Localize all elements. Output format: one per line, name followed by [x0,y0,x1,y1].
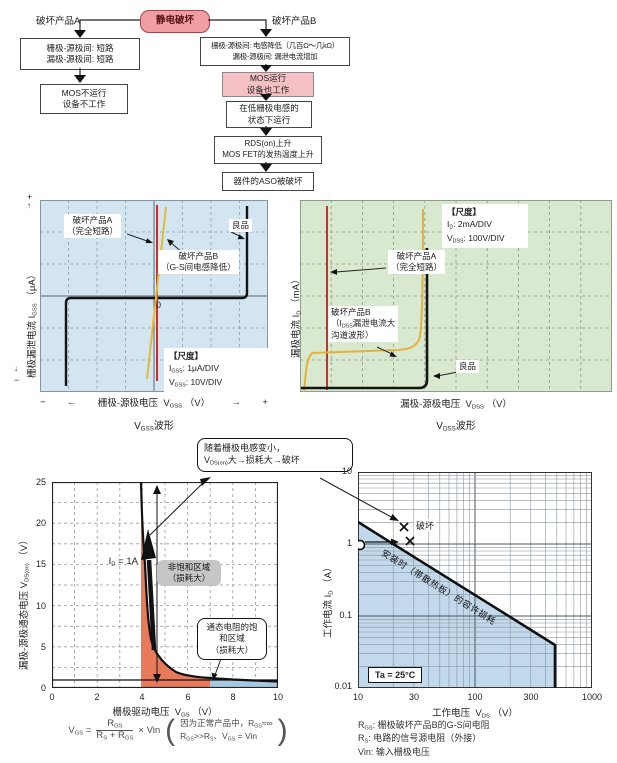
dss-y-axis-label: 漏极电流 ID （mA） [288,275,302,358]
label-text: 破坏产品B [331,307,371,317]
right-arrow-icon: → [231,397,241,408]
label-text: （G-S间电感降低） [161,262,236,272]
gss-label-good: 良品 [229,219,252,232]
gss-label-product-b: 破坏产品B （G-S间电感降低） [158,250,239,274]
label-text: （损耗大） [168,573,211,583]
note-rgs: RGS: 栅极破坏产品B的G-S间电阻 [358,719,490,732]
y-tick: 0.01 [326,681,352,691]
flow-box-b-symptoms: 栅极-源极间: 电感降低（几百Ω～几kΩ） 漏极-源极间: 漏泄电流增加 [200,37,350,66]
flow-box-a-symptoms: 栅极-源极间: 短路 漏极-源极间: 短路 [20,38,140,70]
operating-point-marker [358,541,365,550]
branch-b-label: 破坏产品B [272,13,316,27]
aso-chart-plot [358,472,592,688]
gss-minus-sign: − [14,375,19,385]
formula-note-line: 因为正常产品中，RGS≈∞ [180,718,272,731]
x-tick: 100 [460,692,490,702]
gss-zero-label: 0 [156,300,161,310]
dss-label-product-b: 破坏产品B （IDSS漏泄电流大 沟道波形） [328,306,398,342]
esd-damage-diagram-page: 静电破坏 破坏产品A 破坏产品B 栅极-源极间: 短路 漏极-源极间: 短路 M… [0,0,617,763]
y-tick: 20 [28,518,46,528]
flow-text: 器件的ASO被破坏 [223,176,313,187]
y-tick: 15 [28,559,46,569]
formula-fraction: RGS RS + RGS [96,719,133,742]
vgs-formula: VGS = RGS RS + RGS × Vin ( 因为正常产品中，RGS≈∞… [28,717,328,744]
callout-text: VDS(on)大→损耗大→破坏 [204,455,300,465]
flow-text: RDS(on)上升 [215,139,321,150]
axis-text: 漏极-源极电压 VDSS （V） [400,396,512,410]
x-tick: 10 [268,692,288,702]
label-text: 通态电阻的饱 [206,622,257,632]
gss-caption: VGSS波形 [40,417,268,433]
dss-label-good: 良品 [456,360,479,373]
flow-box-a-result: MOS不运行 设备不工作 [40,84,128,114]
aso-x-axis-label: 工作电压 VDS （V） [358,705,592,719]
label-text: 和区域 [219,633,245,643]
scale-title: 【尺度】 [447,206,523,218]
y-tick: 10 [326,466,352,476]
note-rs: RS: 电路的信号源电阻（外接） [358,732,490,745]
label-text: 破坏产品A [73,215,113,225]
minus-sign: − [40,397,46,408]
y-tick: 10 [28,601,46,611]
flow-root-esd-damage: 静电破坏 [140,10,210,33]
formula-note: 因为正常产品中，RGS≈∞ RGS>>RS、VGS = Vin [180,718,272,743]
formula-lhs: VGS = [68,725,91,736]
dss-scale-box: 【尺度】 ID: 2mA/DIV VDSS: 100V/DIV [442,204,528,248]
formula-note-line: RGS>>RS、VGS = Vin [180,731,272,744]
up-arrow-icon: ↑ [27,201,31,210]
label-text: （完全短路） [67,226,118,236]
dss-x-axis-label: 漏极-源极电压 VDSS （V） [300,396,612,410]
down-arrow-icon: ↓ [14,364,18,373]
flow-text: MOS运行 [223,73,313,84]
x-tick: 10 [343,692,373,702]
label-text: （完全短路） [391,262,442,272]
aso-y-axis-label: 工作电流 ID （A） [320,562,334,638]
flow-box-b-aso-destroyed: 器件的ASO被破坏 [222,172,314,191]
dss-label-product-a: 破坏产品A （完全短路） [388,250,445,274]
scale-line: IGSS: 1μA/DIV [169,362,265,376]
plus-sign: + [262,397,268,408]
flow-text: MOS不运行 [41,88,127,99]
x-tick: 300 [516,692,546,702]
x-tick: 8 [223,692,243,702]
gss-x-axis-label: − ← 栅极-源极电压 VGSS （V） → + [40,395,268,409]
branch-a-label: 破坏产品A [36,13,80,27]
y-tick: 25 [28,477,46,487]
formula-times: × Vin [138,725,160,736]
unsaturated-region-label: 非饱和区域 （损耗大） [157,560,221,586]
label-text: 破坏产品A [397,251,437,261]
flow-box-b-rdson: RDS(on)上升 MOS FET的发热温度上升 [214,136,322,164]
flow-text: 栅极-源极间: 电感降低（几百Ω～几kΩ） [201,41,349,51]
flow-text: 在低栅极电感的 [227,103,311,114]
flow-text: 设备不工作 [41,99,127,110]
gss-scale-box: 【尺度】 IGSS: 1μA/DIV VGSS: 10V/DIV [164,348,270,392]
scale-line: ID: 2mA/DIV [447,218,523,232]
id-condition-label: ID = 1A [94,556,138,567]
label-text: （IDSS漏泄电流大 [331,318,395,328]
gss-label-product-a: 破坏产品A （完全短路） [64,214,121,238]
x-tick: 4 [132,692,152,702]
label-text: 非饱和区域 [168,562,211,572]
scale-title: 【尺度】 [169,350,265,362]
y-tick: 5 [28,642,46,652]
symbol-notes: RGS: 栅极破坏产品B的G-S间电阻 RS: 电路的信号源电阻（外接） Vin… [358,719,490,759]
formula-denominator: RS + RGS [96,731,133,742]
flow-text: 漏极-源极间: 漏泄电流增加 [201,52,349,62]
scale-line: VDSS: 100V/DIV [447,232,523,246]
x-tick: 2 [87,692,107,702]
vdson-y-axis-label: 漏极-源极通态电压 VDS(on) （V） [16,535,30,670]
axis-text: 工作电压 VDS （V） [432,705,518,719]
scale-line: VGSS: 10V/DIV [169,376,265,390]
y-tick: 1 [326,538,352,548]
flow-text: 状态下运行 [227,115,311,126]
x-tick: 6 [178,692,198,702]
x-tick: 0 [42,692,62,702]
temperature-badge: Ta = 25°C [368,667,422,683]
flow-box-b-lowgate: 在低栅极电感的 状态下运行 [226,101,312,128]
dss-caption: VDSS波形 [300,417,612,433]
flow-root-label: 静电破坏 [141,15,209,28]
close-paren: ) [278,717,288,744]
failure-label: 破坏 [414,519,436,532]
x-tick: 30 [399,692,429,702]
open-paren: ( [165,717,175,744]
flow-text: 设备也工作 [223,85,313,96]
label-text: 破坏产品B [178,251,218,261]
gss-y-axis-label: 栅极漏泄电流 IGSS （μA） [24,270,38,378]
flow-box-b-runs: MOS运行 设备也工作 [222,72,314,97]
flow-text: MOS FET的发热温度上升 [215,150,321,161]
saturated-region-label: 通态电阻的饱 和区域 （损耗大） [197,618,267,660]
left-arrow-icon: ← [67,397,77,408]
flow-text: 栅极-源极间: 短路 [21,43,139,54]
flow-text: 漏极-源极间: 短路 [21,54,139,65]
callout-text: 随着栅极电感变小， [204,443,285,453]
label-text: 沟道波形） [331,330,374,340]
x-tick: 1000 [577,692,607,702]
note-vin: Vin: 输入栅极电压 [358,746,490,759]
axis-text: 栅极-源极电压 VGSS （V） [98,395,210,409]
label-text: （损耗大） [211,645,254,655]
